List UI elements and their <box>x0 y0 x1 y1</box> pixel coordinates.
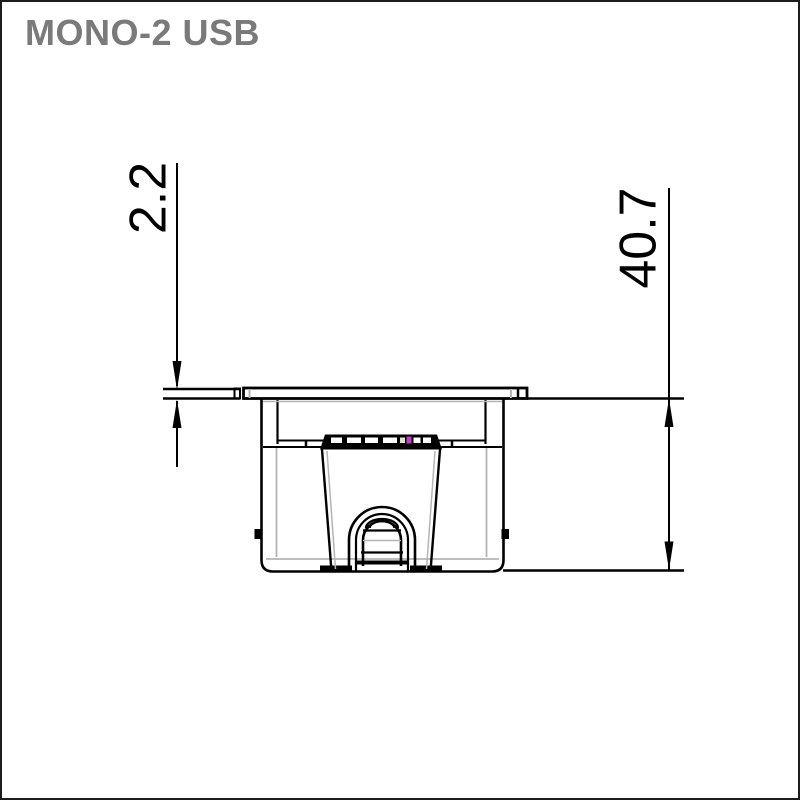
funnel-side-left-inner <box>327 451 336 569</box>
usb-terminal-strip <box>320 435 442 450</box>
cable-entry-arch <box>349 507 415 571</box>
drawing-canvas: 2.2 40.7 <box>0 0 800 800</box>
top-plate <box>235 388 528 399</box>
terminal-slot <box>414 438 421 444</box>
usb-indicator-accent <box>407 437 412 444</box>
latch-left <box>255 529 263 539</box>
cable-dome-inner <box>370 522 394 529</box>
dim-value-plate-thickness: 2.2 <box>120 162 178 234</box>
arrowhead-down-icon <box>665 542 674 571</box>
terminal-slot-accent2 <box>400 438 405 444</box>
terminal-slot <box>347 438 361 444</box>
dim-value-overall-depth: 40.7 <box>610 187 668 288</box>
terminal-slot <box>383 438 397 444</box>
terminal-slot <box>423 438 431 444</box>
terminal-slot <box>365 438 378 444</box>
dimension-overall-depth: 40.7 <box>503 187 684 570</box>
drawing-sheet: MONO-2 USB <box>0 0 800 800</box>
funnel-side-right-inner <box>427 451 436 569</box>
plate-body <box>244 388 528 399</box>
arrowhead-up-icon <box>665 399 674 428</box>
funnel-side-right <box>431 450 441 572</box>
latch-right <box>502 529 510 539</box>
arrowhead-down-icon <box>173 361 182 390</box>
funnel-side-left <box>322 450 332 572</box>
terminal-slot <box>331 438 342 444</box>
dimension-plate-thickness: 2.2 <box>120 162 240 467</box>
body-outline <box>262 399 504 572</box>
enclosure-body <box>255 399 510 572</box>
